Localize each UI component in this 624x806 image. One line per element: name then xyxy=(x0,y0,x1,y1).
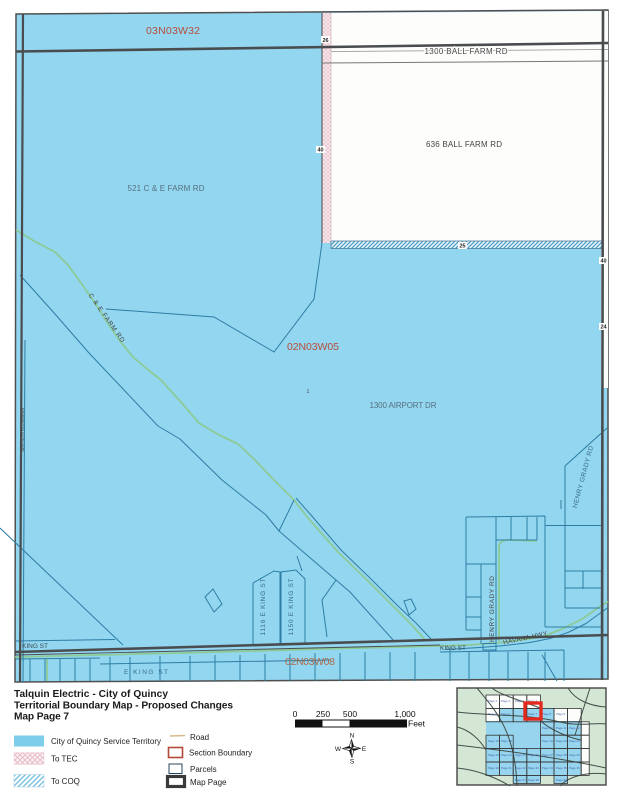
svg-text:24: 24 xyxy=(600,325,607,331)
svg-text:Page 6: Page 6 xyxy=(501,712,511,716)
svg-text:Page 9: Page 9 xyxy=(556,712,566,716)
svg-text:Page 12: Page 12 xyxy=(569,726,580,730)
svg-text:Road: Road xyxy=(190,733,209,742)
svg-text:Page 35: Page 35 xyxy=(556,766,567,770)
svg-text:26: 26 xyxy=(322,38,328,44)
svg-text:Section Boundary: Section Boundary xyxy=(189,749,252,758)
svg-text:E KING ST: E KING ST xyxy=(124,669,168,676)
svg-text:Page 39: Page 39 xyxy=(556,778,567,782)
svg-text:HENRY GRADY RD: HENRY GRADY RD xyxy=(489,576,496,642)
svg-text:Page 26: Page 26 xyxy=(528,753,539,757)
svg-text:Page 24: Page 24 xyxy=(501,753,512,757)
svg-text:Page 3: Page 3 xyxy=(515,699,525,703)
svg-text:Parcels: Parcels xyxy=(190,765,217,774)
svg-text:Page 25: Page 25 xyxy=(515,753,526,757)
svg-text:Talquin Electric - City of Qui: Talquin Electric - City of Quincy xyxy=(14,689,168,700)
svg-text:Page 38: Page 38 xyxy=(528,778,539,782)
svg-text:Page 1: Page 1 xyxy=(488,699,498,703)
svg-text:MW000239 NONAME: MW000239 NONAME xyxy=(20,408,25,452)
svg-text:Page 37: Page 37 xyxy=(515,778,526,782)
svg-text:0: 0 xyxy=(293,709,298,719)
svg-text:Page 29: Page 29 xyxy=(569,753,580,757)
svg-text:Page 11: Page 11 xyxy=(556,726,567,730)
svg-text:W: W xyxy=(335,746,342,753)
svg-text:Page 10: Page 10 xyxy=(542,726,553,730)
svg-text:25: 25 xyxy=(459,244,465,250)
svg-text:Territorial Boundary Map - Pro: Territorial Boundary Map - Proposed Chan… xyxy=(14,701,233,712)
svg-text:Page 16: Page 16 xyxy=(488,739,499,743)
svg-text:1116 E KING ST: 1116 E KING ST xyxy=(260,578,267,635)
svg-text:Page 33: Page 33 xyxy=(528,766,539,770)
svg-text:S: S xyxy=(350,759,355,766)
svg-text:Page 18: Page 18 xyxy=(501,739,512,743)
svg-text:Page 32: Page 32 xyxy=(515,766,526,770)
svg-text:Map Page 7: Map Page 7 xyxy=(14,712,69,723)
svg-text:Page 31: Page 31 xyxy=(501,766,512,770)
svg-text:Page 36: Page 36 xyxy=(569,766,580,770)
svg-text:1,000: 1,000 xyxy=(394,709,416,719)
svg-text:Page 23: Page 23 xyxy=(488,753,499,757)
svg-text:E: E xyxy=(362,746,367,753)
svg-text:N: N xyxy=(350,733,355,740)
svg-text:KING ST: KING ST xyxy=(22,643,48,650)
svg-text:1300 AIRPORT DR: 1300 AIRPORT DR xyxy=(370,401,437,410)
svg-text:40: 40 xyxy=(317,148,323,154)
svg-text:To TEC: To TEC xyxy=(51,755,78,764)
svg-text:Page 7: Page 7 xyxy=(528,712,538,716)
svg-text:Page 21: Page 21 xyxy=(569,739,580,743)
svg-text:Page 2: Page 2 xyxy=(501,699,511,703)
svg-text:Map Page: Map Page xyxy=(190,778,227,787)
svg-text:500: 500 xyxy=(343,709,357,719)
svg-text:Page 28: Page 28 xyxy=(556,753,567,757)
svg-text:Page 34: Page 34 xyxy=(542,766,553,770)
svg-text:1150 E KING ST: 1150 E KING ST xyxy=(288,578,295,635)
svg-text:Feet: Feet xyxy=(408,719,426,729)
svg-text:40: 40 xyxy=(600,259,606,265)
svg-text:Page 8: Page 8 xyxy=(542,712,552,716)
svg-text:1300 BALL FARM RD: 1300 BALL FARM RD xyxy=(425,47,508,56)
svg-text:02N03W08: 02N03W08 xyxy=(285,656,335,668)
svg-text:02N03W05: 02N03W05 xyxy=(287,341,339,353)
svg-text:Page 20: Page 20 xyxy=(556,739,567,743)
svg-text:KING ST: KING ST xyxy=(440,645,466,652)
svg-text:Page 27: Page 27 xyxy=(542,753,553,757)
svg-text:To COQ: To COQ xyxy=(51,777,80,786)
svg-text:03N03W32: 03N03W32 xyxy=(146,25,200,37)
svg-text:Page 30: Page 30 xyxy=(488,766,499,770)
svg-text:Page 5: Page 5 xyxy=(488,712,498,716)
svg-text:City of Quincy Service Territo: City of Quincy Service Territory xyxy=(51,737,161,746)
svg-text:521 C & E FARM RD: 521 C & E FARM RD xyxy=(128,184,205,193)
svg-text:Page 19: Page 19 xyxy=(542,739,553,743)
svg-text:636 BALL FARM RD: 636 BALL FARM RD xyxy=(426,140,502,149)
svg-text:1: 1 xyxy=(307,389,310,395)
svg-text:250: 250 xyxy=(316,709,330,719)
